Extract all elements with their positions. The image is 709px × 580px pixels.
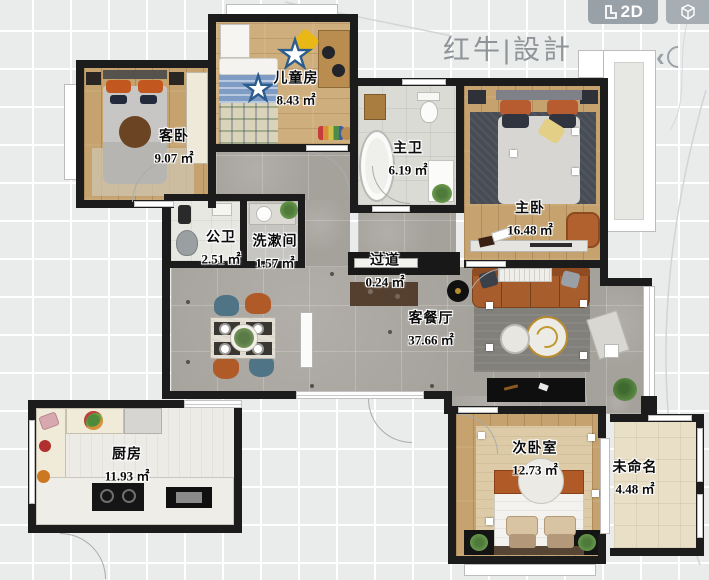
guest-pillow-dark-right bbox=[140, 95, 157, 104]
guest-pillow-orange-left bbox=[106, 80, 131, 93]
ceiling-marker bbox=[588, 434, 595, 441]
guest-pillow-dark-left bbox=[110, 95, 127, 104]
room-name: 未命名 bbox=[613, 457, 658, 477]
second-bedroom-door[interactable] bbox=[458, 407, 498, 413]
living-sliding-door[interactable] bbox=[296, 391, 424, 399]
kitchen-oven-glass bbox=[176, 492, 202, 503]
bath-toilet[interactable] bbox=[420, 101, 438, 123]
master-bed-headboard bbox=[496, 90, 582, 100]
wall[interactable] bbox=[298, 194, 305, 267]
wall[interactable] bbox=[162, 201, 170, 399]
room-label-master-bedroom: 主卧 16.48 ㎡ bbox=[507, 198, 553, 239]
wall[interactable] bbox=[240, 194, 247, 267]
spotlight-dot bbox=[310, 384, 314, 388]
wall[interactable] bbox=[208, 14, 358, 22]
room-label-guest-bedroom: 客卧 9.07 ㎡ bbox=[154, 126, 193, 167]
wall[interactable] bbox=[350, 14, 358, 86]
kitchen-burner-2 bbox=[122, 489, 136, 503]
ceiling-marker bbox=[580, 352, 587, 359]
side-table-white[interactable] bbox=[604, 344, 619, 358]
wall[interactable] bbox=[598, 534, 606, 564]
room-area: 0.24 ㎡ bbox=[365, 272, 404, 291]
dining-chair-rust[interactable] bbox=[245, 293, 271, 314]
room-label-unnamed: 未命名 4.48 ㎡ bbox=[613, 457, 658, 498]
master-pillow-orange-left bbox=[500, 100, 531, 115]
ceiling-marker bbox=[510, 150, 517, 157]
master-balcony-top[interactable] bbox=[578, 50, 604, 78]
spotlight-dot bbox=[388, 330, 392, 334]
second-bedroom-bay-window[interactable] bbox=[464, 564, 596, 576]
tv-console[interactable] bbox=[487, 378, 585, 402]
room-area: 2.51 ㎡ bbox=[201, 249, 240, 268]
unnamed-right-window-2[interactable] bbox=[697, 494, 703, 538]
room-name: 客餐厅 bbox=[408, 308, 453, 328]
guest-pillow-orange-right bbox=[138, 80, 163, 93]
kitchen-left-window[interactable] bbox=[29, 420, 35, 504]
ceiling-marker bbox=[486, 518, 493, 525]
wall[interactable] bbox=[208, 14, 216, 154]
room-name: 洗漱间 bbox=[253, 231, 298, 251]
view-mode-3d-button[interactable] bbox=[666, 0, 709, 24]
master-pillow-orange-right bbox=[547, 100, 578, 115]
spotlight-dot bbox=[186, 360, 190, 364]
wall[interactable] bbox=[76, 60, 216, 68]
public-bath-toilet[interactable] bbox=[176, 230, 198, 256]
wall[interactable] bbox=[600, 78, 608, 286]
room-name: 厨房 bbox=[112, 444, 142, 464]
master-door[interactable] bbox=[466, 261, 506, 267]
second-bed-pillow-2 bbox=[544, 516, 576, 536]
ceiling-marker bbox=[572, 128, 579, 135]
wall[interactable] bbox=[76, 60, 84, 208]
kitchen-fruit-red bbox=[39, 440, 51, 452]
wall[interactable] bbox=[234, 400, 242, 533]
wall[interactable] bbox=[456, 78, 608, 86]
room-area: 16.48 ㎡ bbox=[507, 220, 553, 239]
chevron-left-icon: ‹ bbox=[656, 46, 665, 68]
unnamed-right-window[interactable] bbox=[697, 428, 703, 482]
room-label-second-bedroom: 次卧室 12.73 ㎡ bbox=[512, 438, 558, 479]
kids-bed-plaid-blanket[interactable] bbox=[219, 103, 278, 144]
wall[interactable] bbox=[28, 525, 242, 533]
second-bedroom-side-window[interactable] bbox=[600, 438, 610, 534]
ceiling-marker bbox=[486, 344, 493, 351]
master-bench-item-2 bbox=[530, 243, 572, 247]
room-label-master-bath: 主卫 6.19 ㎡ bbox=[388, 138, 427, 179]
room-label-living-dining: 客餐厅 37.66 ㎡ bbox=[408, 308, 454, 349]
wall[interactable] bbox=[641, 396, 657, 414]
wall[interactable] bbox=[448, 556, 606, 564]
room-label-kitchen: 厨房 11.93 ㎡ bbox=[105, 444, 150, 485]
dining-chair-teal-2[interactable] bbox=[249, 356, 274, 377]
kitchen-fruit-orange bbox=[37, 470, 50, 483]
washroom-sink bbox=[256, 206, 272, 222]
kids-wardrobe[interactable] bbox=[220, 24, 250, 58]
room-name: 客卧 bbox=[159, 126, 189, 146]
master-balcony-inner bbox=[614, 62, 644, 220]
wall[interactable] bbox=[604, 278, 652, 286]
cube-3d-icon bbox=[679, 3, 697, 21]
dining-chair-teal[interactable] bbox=[214, 295, 239, 316]
room-name: 儿童房 bbox=[274, 68, 319, 88]
master-nightstand-right[interactable] bbox=[580, 90, 598, 104]
second-nightstand-plant-2 bbox=[578, 534, 596, 551]
kids-desk-chair-2[interactable] bbox=[332, 64, 345, 77]
guest-nightstand-left[interactable] bbox=[86, 72, 101, 85]
room-area: 9.07 ㎡ bbox=[154, 148, 193, 167]
bath-door[interactable] bbox=[372, 206, 410, 212]
half-circle-icon bbox=[662, 41, 693, 72]
kitchen-sliding-door[interactable] bbox=[184, 400, 242, 408]
living-right-window[interactable] bbox=[643, 286, 655, 398]
kids-desk-chair[interactable] bbox=[322, 46, 335, 59]
floorplan-canvas[interactable]: ★ ★ bbox=[0, 0, 709, 580]
room-area: 4.48 ㎡ bbox=[615, 479, 654, 498]
kids-desk[interactable] bbox=[318, 30, 350, 88]
washroom-plant[interactable] bbox=[280, 201, 298, 219]
room-name: 过道 bbox=[370, 250, 400, 270]
spotlight-dot bbox=[186, 300, 190, 304]
coffee-table-small[interactable] bbox=[500, 324, 530, 354]
unnamed-top-window[interactable] bbox=[648, 415, 692, 421]
view-mode-2d-label: 2D bbox=[621, 2, 644, 22]
spotlight-dot bbox=[330, 272, 334, 276]
dining-plate bbox=[219, 343, 231, 355]
room-name: 主卧 bbox=[515, 198, 545, 218]
room-area: 12.73 ㎡ bbox=[512, 460, 558, 479]
bath-plant[interactable] bbox=[432, 184, 452, 203]
speaker-center bbox=[455, 288, 461, 294]
star-decor-icon: ★ bbox=[243, 72, 273, 106]
ceiling-marker bbox=[486, 302, 493, 309]
panel-collapse-handle[interactable]: ‹ bbox=[656, 46, 689, 68]
master-nightstand-left[interactable] bbox=[468, 90, 486, 104]
kitchen-burner bbox=[100, 489, 114, 503]
ceiling-marker bbox=[572, 168, 579, 175]
view-mode-2d-button[interactable]: 2D bbox=[588, 0, 658, 24]
room-label-kids-room: 儿童房 8.43 ㎡ bbox=[274, 68, 319, 109]
second-bed-pillow bbox=[506, 516, 538, 536]
bath-toilet-tank bbox=[417, 92, 440, 101]
room-name: 主卫 bbox=[393, 138, 423, 158]
wall[interactable] bbox=[36, 400, 184, 408]
dining-chair-rust-2[interactable] bbox=[213, 358, 239, 379]
room-area: 11.93 ㎡ bbox=[105, 466, 150, 485]
guest-bed-headboard bbox=[103, 70, 167, 79]
brand-watermark: 红牛|設計 bbox=[443, 28, 573, 67]
room-area: 1.57 ㎡ bbox=[255, 253, 294, 272]
second-bed-pillow-4 bbox=[547, 534, 574, 548]
wall[interactable] bbox=[610, 548, 704, 556]
sofa-throw-blanket bbox=[498, 268, 552, 282]
room-name: 次卧室 bbox=[512, 438, 557, 458]
second-bed-pillow-3 bbox=[509, 534, 536, 548]
wall[interactable] bbox=[162, 391, 296, 399]
spotlight-dot bbox=[430, 384, 434, 388]
kids-door[interactable] bbox=[306, 145, 348, 151]
dining-centerpiece-plant bbox=[234, 328, 254, 348]
wall[interactable] bbox=[164, 194, 305, 201]
guest-nightstand-right[interactable] bbox=[169, 72, 184, 85]
master-pillow-dark-left bbox=[502, 114, 529, 128]
wall[interactable] bbox=[456, 78, 464, 213]
ceiling-marker bbox=[592, 490, 599, 497]
wall[interactable] bbox=[350, 86, 358, 213]
corridor-floor-b[interactable] bbox=[305, 200, 350, 267]
bath-top-window[interactable] bbox=[402, 79, 446, 85]
wall[interactable] bbox=[448, 406, 456, 564]
living-sideboard[interactable] bbox=[300, 312, 313, 368]
public-bath-fixture[interactable] bbox=[178, 205, 191, 224]
second-nightstand-plant bbox=[470, 534, 488, 551]
room-label-washroom: 洗漱间 1.57 ㎡ bbox=[253, 231, 298, 272]
bath-vanity[interactable] bbox=[364, 94, 386, 120]
room-area: 6.19 ㎡ bbox=[388, 160, 427, 179]
room-area: 37.66 ㎡ bbox=[408, 330, 454, 349]
room-label-public-bath: 公卫 2.51 ㎡ bbox=[201, 227, 240, 268]
kitchen-fruit-plate bbox=[84, 411, 103, 430]
room-label-hallway: 过道 0.24 ㎡ bbox=[365, 250, 404, 291]
room-name: 公卫 bbox=[206, 227, 236, 247]
corner-2d-icon bbox=[603, 5, 617, 19]
dining-plate bbox=[219, 323, 231, 335]
living-plant[interactable] bbox=[613, 378, 637, 401]
ceiling-marker bbox=[478, 432, 485, 439]
guest-round-blanket bbox=[119, 116, 151, 148]
kitchen-fridge[interactable] bbox=[124, 408, 162, 434]
room-area: 8.43 ㎡ bbox=[276, 90, 315, 109]
wall[interactable] bbox=[598, 406, 606, 438]
ceiling-marker bbox=[580, 300, 587, 307]
